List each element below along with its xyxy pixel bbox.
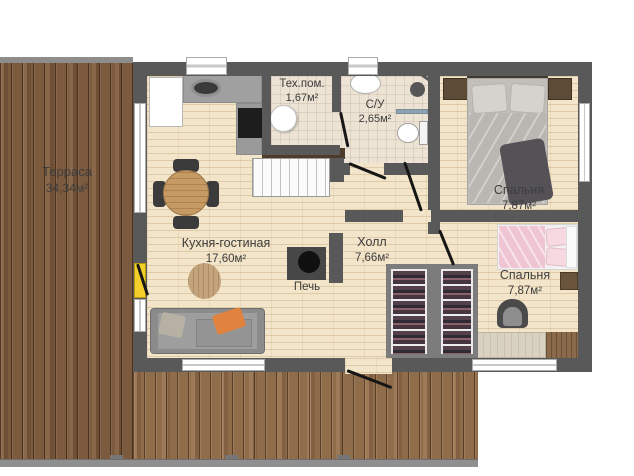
deck-edge-top xyxy=(0,57,133,63)
stove-circle xyxy=(298,251,320,273)
nightstand xyxy=(548,78,572,100)
bed-pink-blanket xyxy=(499,226,545,268)
toilet-bowl-icon xyxy=(397,123,419,143)
terrace-name: Терраса xyxy=(42,164,92,179)
bed-pillow xyxy=(509,83,546,114)
kitchen-sink-icon xyxy=(191,79,221,97)
bed-mattress-edge xyxy=(566,226,577,268)
towel-rail-icon xyxy=(396,109,428,114)
bottom-deck xyxy=(133,372,478,460)
staircase xyxy=(252,158,330,197)
terrace-deck xyxy=(0,60,133,460)
bedroom-bottom-name: Спальня xyxy=(500,268,550,282)
closet-right xyxy=(441,269,473,354)
wall-hall-a xyxy=(345,210,403,222)
boiler-icon xyxy=(270,105,297,132)
wall-stair-side xyxy=(330,158,344,182)
tech-room-label: Тех.пом. 1,67м² xyxy=(279,78,324,106)
washbasin-icon xyxy=(350,73,381,94)
stove-name: Печь xyxy=(294,281,320,293)
dining-chair xyxy=(173,216,199,229)
wall-stove-chimney xyxy=(329,233,343,283)
terrace-label: Терраса 34,34м² xyxy=(42,164,92,195)
bedroom-top-area: 7,87м² xyxy=(502,200,536,212)
window-terrace-1 xyxy=(134,103,146,213)
floor-plan: Терраса 34,34м² Кухня-гостиная 17,60м² Х… xyxy=(0,0,634,476)
kitchen-living-name: Кухня-гостиная xyxy=(182,236,270,250)
window-bathroom xyxy=(348,57,378,75)
kitchen-living-label: Кухня-гостиная 17,60м² xyxy=(182,236,270,267)
deck-edge-bottom xyxy=(0,459,478,467)
wall-tech-right xyxy=(332,76,341,112)
shower-head-icon xyxy=(410,82,425,97)
sofa-pillow xyxy=(158,312,186,339)
tech-room-name: Тех.пом. xyxy=(279,78,324,90)
desk-icon xyxy=(468,332,546,358)
window-kitchen xyxy=(186,57,227,75)
hall-area: 7,66м² xyxy=(355,252,389,264)
stove-label: Печь xyxy=(294,281,320,295)
window-bedroom-bottom xyxy=(472,359,557,371)
bedroom-top-label: Спальня 7,87м² xyxy=(494,183,544,214)
closet-left xyxy=(391,269,427,354)
tech-room-area: 1,67м² xyxy=(286,92,319,104)
hall-name: Холл xyxy=(357,235,386,249)
rug-icon xyxy=(188,263,221,299)
bedroom-bottom-label: Спальня 7,87м² xyxy=(500,268,550,299)
nightstand xyxy=(560,272,578,290)
desk-chair-seat xyxy=(503,307,522,326)
bathroom-area: 2,65м² xyxy=(359,113,392,125)
cabinet-icon xyxy=(546,332,578,358)
kitchen-living-area: 17,60м² xyxy=(206,253,247,265)
window-terrace-2 xyxy=(134,299,146,332)
cooktop-icon xyxy=(238,108,262,138)
hall-label: Холл 7,66м² xyxy=(355,235,389,266)
wall-tech-bottom xyxy=(262,145,340,155)
nightstand xyxy=(443,78,468,100)
kitchen-cabinet xyxy=(149,77,183,127)
bathroom-name: С/У xyxy=(366,99,385,111)
bathroom-label: С/У 2,65м² xyxy=(359,99,392,127)
wall-tech-left xyxy=(262,76,271,155)
window-living-south xyxy=(182,359,265,371)
bedroom-bottom-area: 7,87м² xyxy=(508,285,542,297)
dining-table-icon xyxy=(163,170,209,216)
terrace-area: 34,34м² xyxy=(46,181,88,195)
toilet-tank xyxy=(419,121,428,145)
bed-pillow xyxy=(471,83,508,114)
wall-bath-bedroom xyxy=(428,62,440,210)
bedroom-top-name: Спальня xyxy=(494,183,544,197)
window-bedroom-top xyxy=(579,103,590,182)
